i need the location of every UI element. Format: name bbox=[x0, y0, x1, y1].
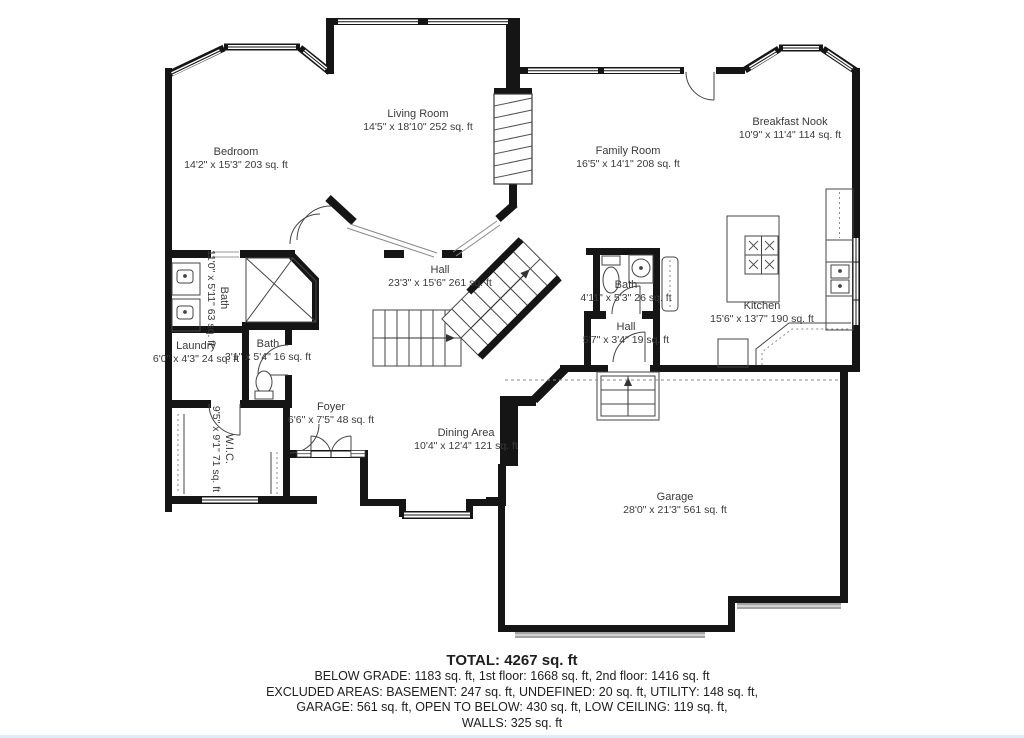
fireplace-icon bbox=[494, 88, 532, 184]
bay-window-bedroom bbox=[167, 47, 330, 75]
garage-steps bbox=[597, 372, 659, 420]
summary-line-1: BELOW GRADE: 1183 sq. ft, 1st floor: 166… bbox=[0, 669, 1024, 685]
summary-total: TOTAL: 4267 sq. ft bbox=[0, 652, 1024, 669]
garage-doors bbox=[515, 603, 841, 638]
kitchen-island bbox=[727, 216, 779, 302]
summary-line-2: EXCLUDED AREAS: BASEMENT: 247 sq. ft, UN… bbox=[0, 685, 1024, 701]
summary-line-3: GARAGE: 561 sq. ft, OPEN TO BELOW: 430 s… bbox=[0, 700, 1024, 716]
summary-line-4: WALLS: 325 sq. ft bbox=[0, 716, 1024, 732]
kitchen-counter-right bbox=[826, 189, 853, 330]
toilet-icon-family-bath bbox=[602, 256, 620, 293]
bay-window-breakfast-nook bbox=[745, 48, 856, 71]
stove-icon bbox=[745, 236, 778, 274]
pantry-cabinet bbox=[662, 257, 678, 311]
vanity-sink-icon bbox=[172, 263, 200, 331]
toilet-icon-small-bath bbox=[255, 371, 273, 399]
closet-rods bbox=[178, 414, 277, 494]
sink-icon-family-bath bbox=[629, 255, 653, 283]
front-door bbox=[297, 451, 365, 458]
cased-opening bbox=[212, 252, 239, 257]
open-boundary-lines bbox=[347, 221, 500, 257]
interior-walls bbox=[165, 180, 660, 408]
floor-plan-drawing bbox=[0, 0, 1024, 738]
floor-plan-page: Bedroom 14'2" x 15'3" 203 sq. ft Living … bbox=[0, 0, 1024, 738]
area-summary: TOTAL: 4267 sq. ft BELOW GRADE: 1183 sq.… bbox=[0, 652, 1024, 731]
